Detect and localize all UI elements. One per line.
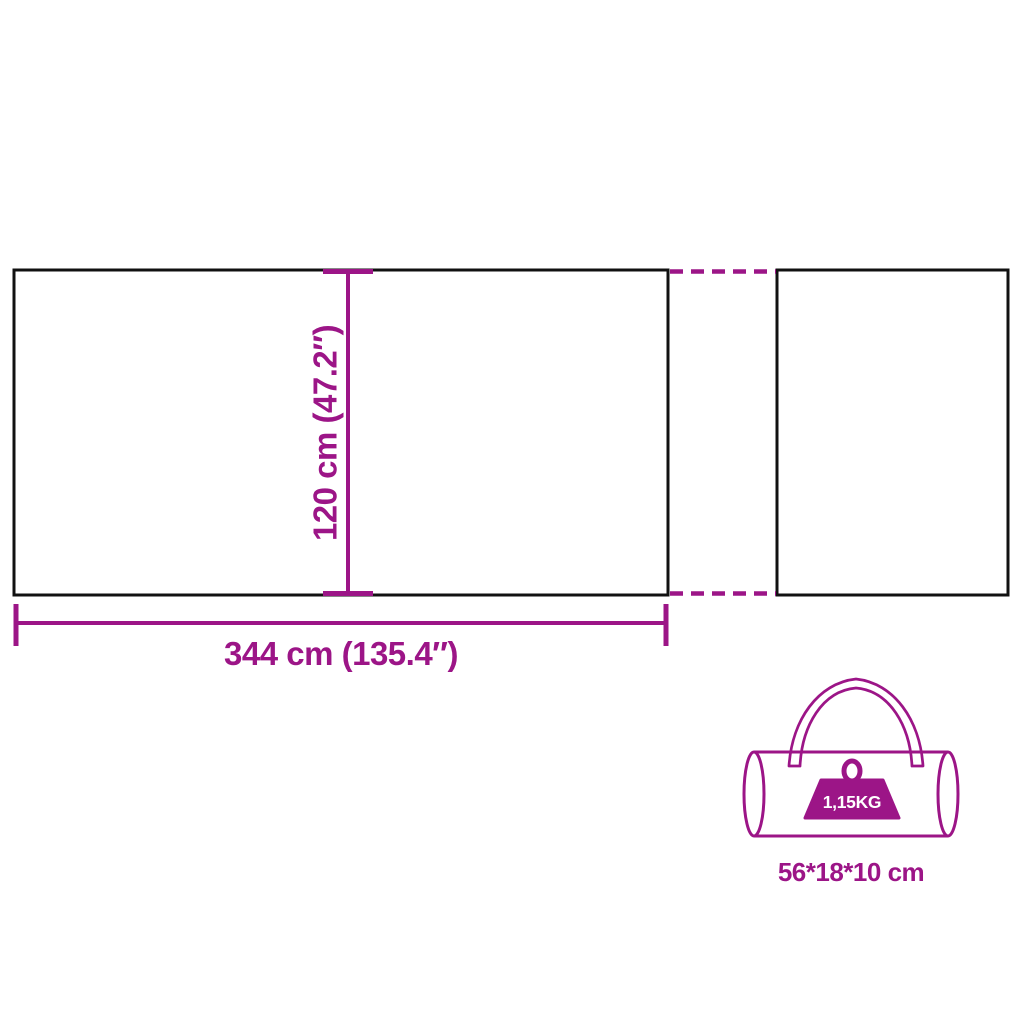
weight-badge-label: 1,15KG — [823, 792, 882, 812]
weight-hook-icon — [844, 761, 860, 781]
dimension-diagram-svg: 120 cm (47.2″) 344 cm (135.4″) 1,15KG — [0, 0, 1024, 1024]
width-dimension: 344 cm (135.4″) — [14, 604, 668, 672]
height-dimension-label: 120 cm (47.2″) — [307, 325, 344, 541]
weight-icon: 1,15KG — [805, 761, 899, 818]
carry-bag-illustration: 1,15KG 56*18*10 cm — [744, 679, 958, 887]
product-dimension-diagram: 120 cm (47.2″) 344 cm (135.4″) 1,15KG — [0, 0, 1024, 1024]
bag-size-label: 56*18*10 cm — [778, 857, 924, 887]
bag-right-end-cap — [938, 752, 958, 836]
width-dimension-label: 344 cm (135.4″) — [224, 635, 458, 672]
folded-panel-outline — [777, 270, 1008, 595]
height-dimension: 120 cm (47.2″) — [307, 271, 374, 594]
bag-left-end-cap — [744, 752, 764, 836]
